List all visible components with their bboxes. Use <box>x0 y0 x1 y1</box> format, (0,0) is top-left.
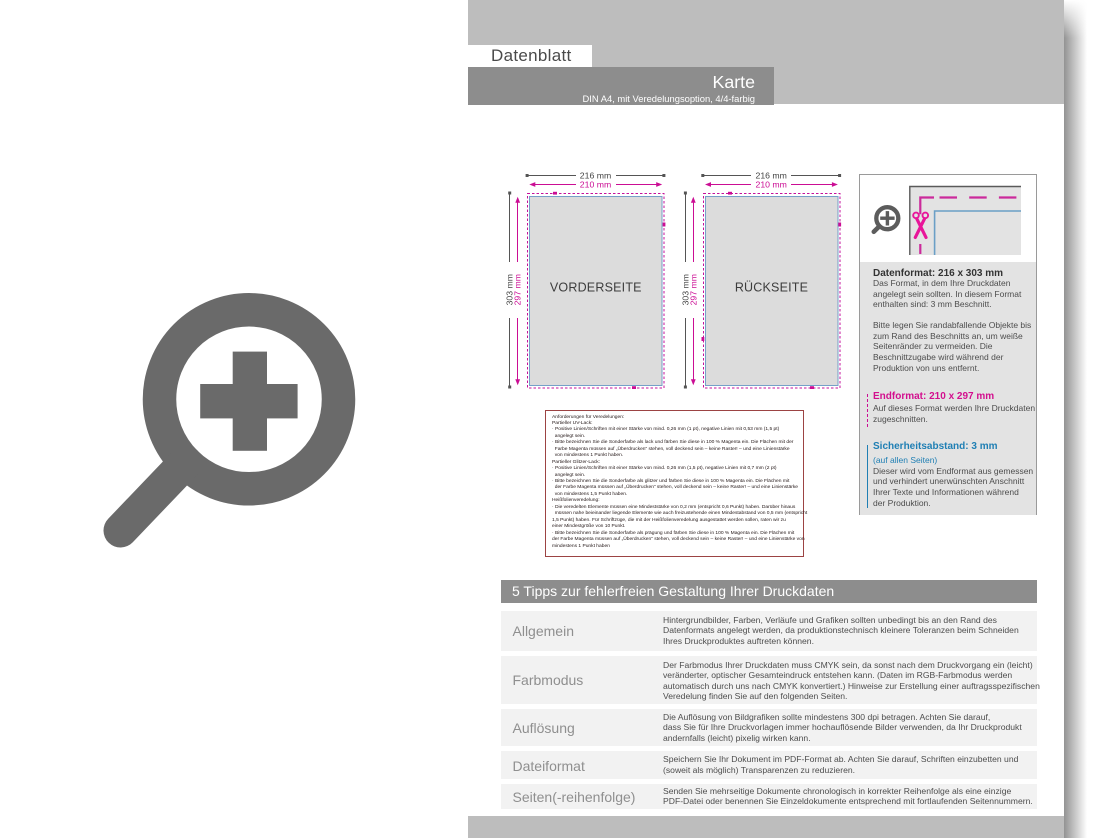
svg-text:210 mm: 210 mm <box>580 179 611 189</box>
svg-text:VORDERSEITE: VORDERSEITE <box>550 281 642 295</box>
svg-text:RÜCKSEITE: RÜCKSEITE <box>735 281 808 295</box>
svg-text:297 mm: 297 mm <box>688 274 698 305</box>
svg-text:210 mm: 210 mm <box>756 179 787 189</box>
svg-text:297 mm: 297 mm <box>513 274 523 305</box>
